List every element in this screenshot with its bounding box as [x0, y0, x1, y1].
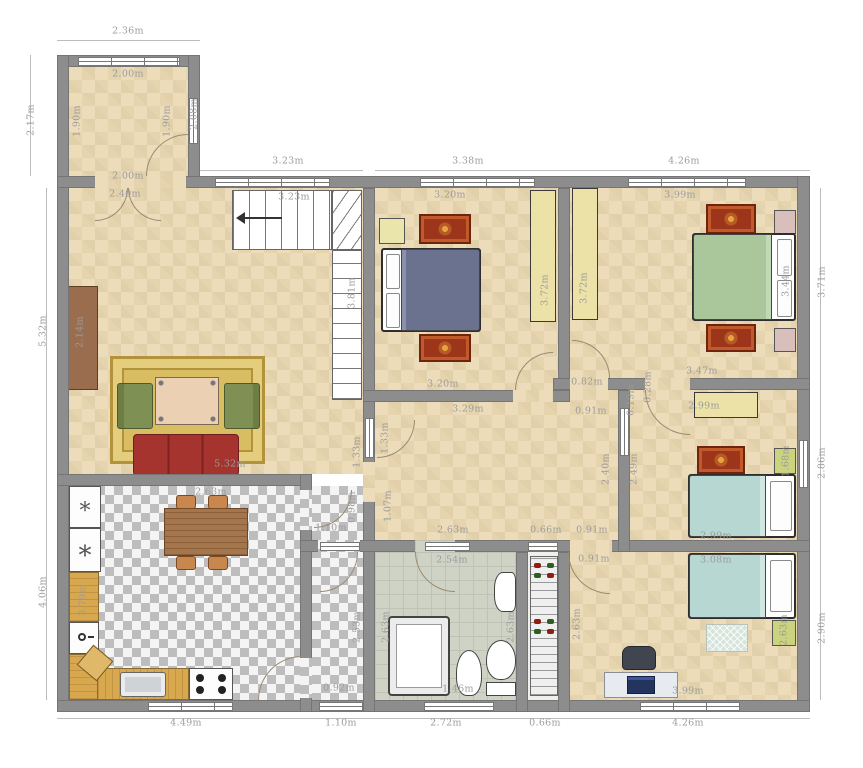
dimension-label: 2.36m: [112, 26, 144, 37]
duvet: [689, 475, 766, 537]
bathroom-sink[interactable]: [494, 572, 516, 612]
dining-chair[interactable]: [208, 556, 228, 570]
dimension-label: 2.86m: [817, 447, 828, 479]
dimension-label: 2.00m: [112, 171, 144, 182]
dining-table[interactable]: [164, 508, 248, 556]
dimension-label: 2.72m: [430, 718, 462, 729]
dimension-label: 2.08m: [189, 98, 200, 130]
wall: [516, 552, 528, 712]
dimension-label: 2.40m: [601, 453, 612, 485]
dimension-label: 2.40m: [109, 189, 141, 200]
dimension-label: 3.23m: [278, 192, 310, 203]
bedside-rug[interactable]: [697, 446, 745, 474]
window[interactable]: [628, 178, 746, 187]
bedside-rug[interactable]: [706, 624, 748, 652]
armchair-right[interactable]: [224, 383, 260, 429]
dimension-label: 3.23m: [272, 156, 304, 167]
dimension-label: 0.91m: [576, 525, 608, 536]
bedside-rug[interactable]: [419, 214, 471, 244]
dimension-label: 2.99m: [700, 531, 732, 542]
window[interactable]: [425, 542, 470, 551]
window[interactable]: [424, 702, 494, 711]
tap-icon: [88, 636, 94, 638]
dimension-label: 0.91m: [578, 554, 610, 565]
dimension-label: 2.54m: [436, 555, 468, 566]
armchair-left[interactable]: [117, 383, 153, 429]
dimension-label: 3.44m: [781, 265, 792, 297]
dimension-label: 3.20m: [434, 190, 466, 201]
window[interactable]: [640, 702, 740, 711]
wall: [558, 552, 570, 712]
dimension-label: 2.90m: [817, 612, 828, 644]
pillow: [770, 481, 792, 531]
toilet-tank: [486, 682, 516, 696]
nightstand[interactable]: [774, 210, 796, 234]
dimension-label: 1.07m: [383, 490, 394, 522]
doorway: [363, 462, 375, 502]
staircase-direction-arrow-icon: [236, 212, 245, 224]
dimension-label: 2.14m: [75, 316, 86, 348]
bedside-rug[interactable]: [706, 204, 756, 234]
dimension-label: 3.08m: [700, 555, 732, 566]
doorway: [300, 490, 312, 530]
dimension-label: 3.20m: [427, 379, 459, 390]
appliance-star-icon: *: [79, 552, 92, 560]
pillow: [386, 293, 400, 328]
dimension-label: 3.38m: [452, 156, 484, 167]
window[interactable]: [420, 178, 535, 187]
dimension-label: 3.99m: [672, 686, 704, 697]
dimension-label: 0.98m: [347, 491, 358, 523]
dimension-label: 2.63m: [779, 614, 790, 646]
refrigerator[interactable]: *: [69, 486, 101, 528]
sofa[interactable]: [133, 434, 239, 476]
tap-icon: [78, 633, 86, 641]
dimension-line: [375, 170, 565, 171]
bedside-rug[interactable]: [706, 324, 756, 352]
single-bed[interactable]: [688, 474, 796, 538]
dimension-label: 2.00m: [112, 69, 144, 80]
dimension-label: 0.82m: [571, 377, 603, 388]
dimension-label: 2.63m: [506, 611, 517, 643]
dimension-label: 1.33m: [352, 436, 363, 468]
staircase-winder[interactable]: [332, 190, 362, 250]
window[interactable]: [320, 542, 360, 551]
dimension-label: 3.79m: [78, 584, 89, 616]
dimension-line: [200, 170, 363, 171]
bedside-rug[interactable]: [419, 334, 471, 362]
dimension-line: [57, 40, 200, 41]
double-bed[interactable]: [381, 248, 481, 332]
dimension-label: 4.26m: [672, 718, 704, 729]
staircase-lower-flight[interactable]: [332, 250, 362, 400]
dimension-label: 0.19m: [626, 384, 637, 416]
floor-plan: * *: [0, 0, 863, 768]
dimension-label: 0.66m: [529, 718, 561, 729]
dimension-label: 2.53m: [352, 611, 363, 643]
duvet: [401, 249, 480, 331]
window[interactable]: [528, 542, 558, 551]
dimension-label: 3.81m: [347, 277, 358, 309]
stove[interactable]: [189, 668, 233, 700]
dimension-label: 3.72m: [540, 274, 551, 306]
shelf-unit[interactable]: [530, 556, 558, 696]
dimension-label: 1.33m: [380, 422, 391, 454]
coffee-table[interactable]: [155, 377, 219, 425]
freezer[interactable]: *: [69, 528, 101, 572]
pillow: [386, 254, 400, 289]
dimension-label: 3.71m: [817, 266, 828, 298]
dimension-line: [565, 170, 810, 171]
wall: [57, 55, 69, 712]
dimension-label: 0.66m: [530, 525, 562, 536]
dining-chair[interactable]: [176, 556, 196, 570]
wall: [57, 474, 312, 486]
dimension-label: 1.10m: [315, 523, 347, 534]
pillow: [770, 560, 792, 612]
kitchen-sink[interactable]: [120, 672, 166, 697]
doorway: [513, 390, 553, 402]
dimension-label: 5.32m: [214, 459, 246, 470]
dimension-label: 1.90m: [162, 105, 173, 137]
dimension-label: 2.63m: [437, 525, 469, 536]
dimension-label: 1.90m: [72, 105, 83, 137]
window[interactable]: [148, 702, 233, 711]
nightstand[interactable]: [379, 218, 405, 244]
dimension-label: 4.06m: [38, 576, 49, 608]
appliance-star-icon: *: [80, 508, 91, 516]
window[interactable]: [799, 440, 808, 488]
dimension-label: 0.28m: [643, 371, 654, 403]
dimension-label: 1.46m: [442, 684, 474, 695]
nightstand[interactable]: [774, 328, 796, 352]
doorway: [570, 540, 612, 552]
window[interactable]: [365, 418, 374, 458]
dimension-label: 1.68m: [781, 445, 792, 477]
window[interactable]: [215, 178, 330, 187]
dimension-label: 3.47m: [686, 366, 718, 377]
duvet: [693, 234, 772, 320]
desk[interactable]: [604, 672, 678, 698]
dimension-label: 2.63m: [572, 608, 583, 640]
dimension-label: 3.29m: [452, 404, 484, 415]
bathtub[interactable]: [388, 616, 450, 696]
office-chair[interactable]: [622, 646, 656, 670]
dimension-label: 1.10m: [325, 718, 357, 729]
window[interactable]: [78, 57, 180, 66]
toilet[interactable]: [486, 640, 516, 680]
dimension-label: 2.63m: [381, 611, 392, 643]
staircase-direction-line: [244, 217, 282, 219]
dimension-label: 2.99m: [688, 401, 720, 412]
dimension-label: 4.49m: [170, 718, 202, 729]
dimension-label: 0.91m: [575, 406, 607, 417]
dimension-label: 0.92m: [323, 683, 355, 694]
dimension-label: 2.49m: [629, 453, 640, 485]
dimension-label: 2.63m: [195, 487, 227, 498]
dimension-label: 3.72m: [579, 272, 590, 304]
laptop: [627, 676, 655, 694]
dimension-label: 2.17m: [26, 104, 37, 136]
dimension-label: 5.32m: [38, 315, 49, 347]
wall: [558, 188, 570, 390]
window[interactable]: [319, 702, 363, 711]
dining-chair[interactable]: [176, 495, 196, 509]
dimension-label: 3.99m: [664, 190, 696, 201]
dimension-label: 4.26m: [668, 156, 700, 167]
